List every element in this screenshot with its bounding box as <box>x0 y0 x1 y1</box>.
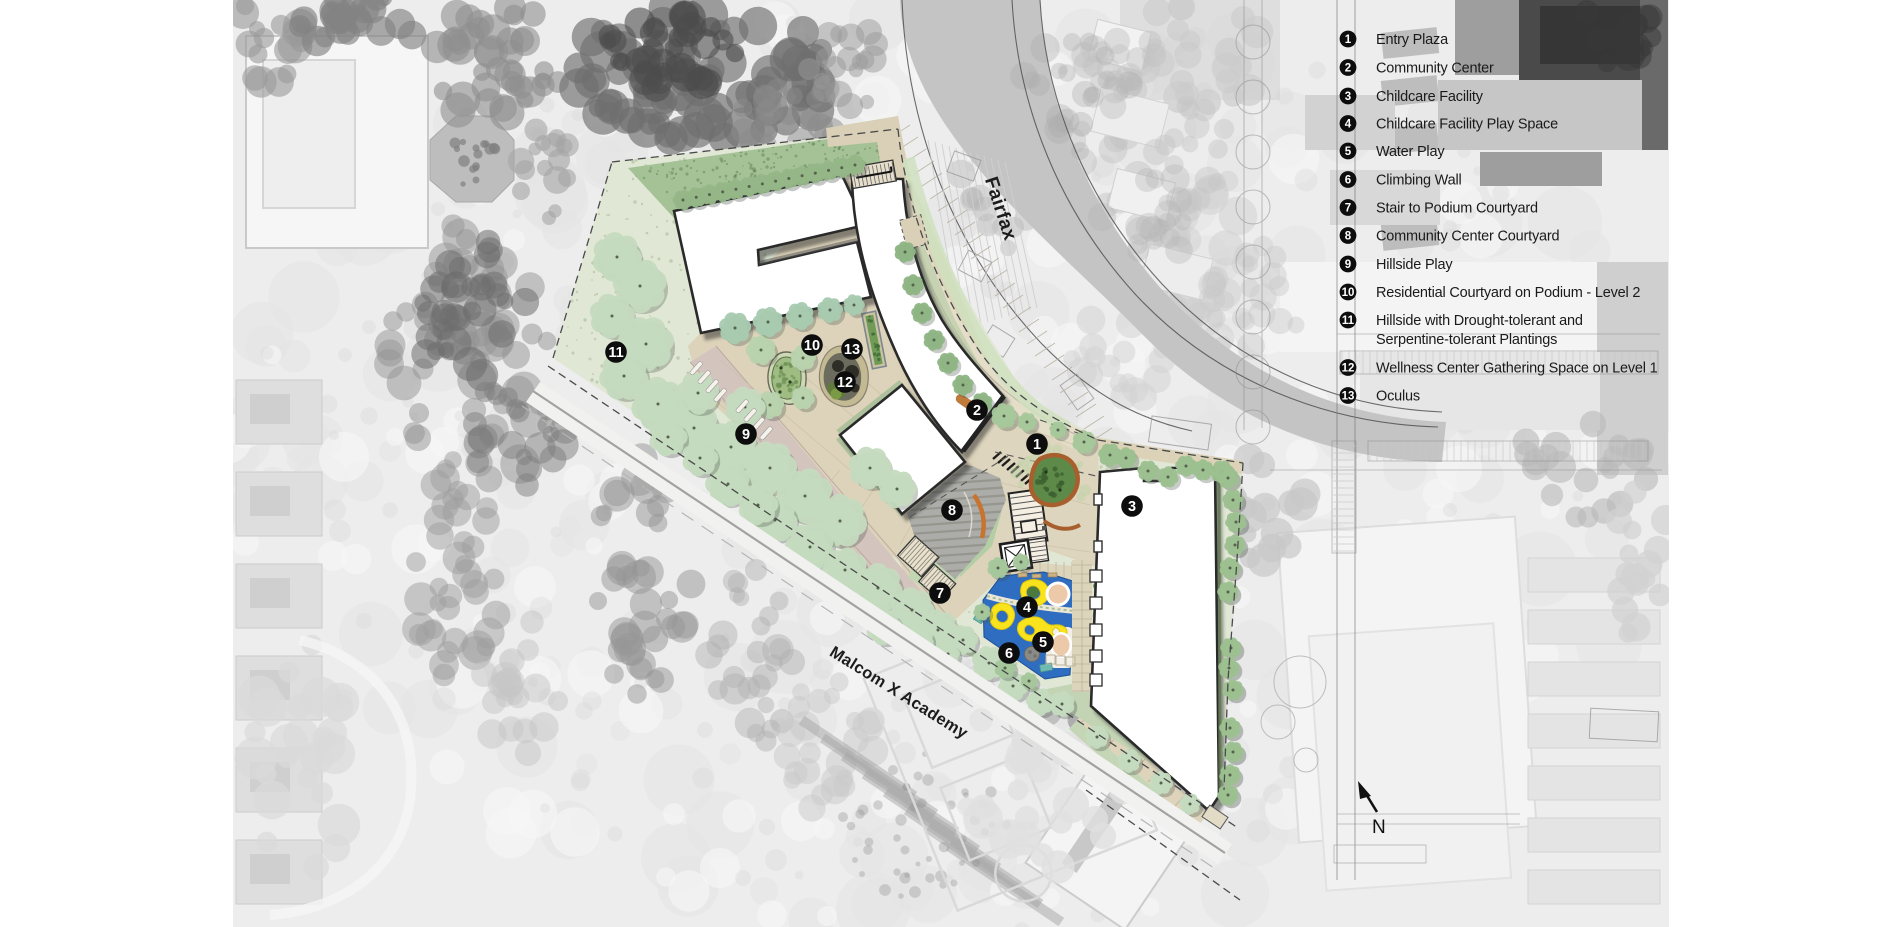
svg-text:6: 6 <box>1345 175 1351 187</box>
svg-text:Community Center: Community Center <box>1376 61 1494 77</box>
svg-text:13: 13 <box>1342 391 1355 403</box>
svg-text:10: 10 <box>804 338 820 354</box>
svg-text:13: 13 <box>844 342 860 358</box>
svg-text:Entry Plaza: Entry Plaza <box>1376 32 1449 48</box>
svg-text:1: 1 <box>1345 34 1352 46</box>
svg-text:Hillside with Drought-tolerant: Hillside with Drought-tolerant and <box>1376 313 1583 329</box>
svg-text:2: 2 <box>973 403 981 419</box>
svg-text:Oculus: Oculus <box>1376 389 1420 405</box>
svg-text:8: 8 <box>1345 231 1352 243</box>
svg-text:9: 9 <box>1345 259 1351 271</box>
svg-text:12: 12 <box>1342 363 1355 375</box>
svg-text:5: 5 <box>1039 635 1047 651</box>
svg-text:6: 6 <box>1005 646 1013 662</box>
svg-text:Childcare Facility Play Space: Childcare Facility Play Space <box>1376 117 1558 133</box>
svg-text:7: 7 <box>1345 203 1351 215</box>
svg-text:11: 11 <box>1342 315 1355 327</box>
svg-text:4: 4 <box>1023 600 1031 616</box>
svg-text:Hillside Play: Hillside Play <box>1376 257 1453 273</box>
svg-text:N: N <box>1372 817 1386 838</box>
svg-text:5: 5 <box>1345 146 1352 158</box>
svg-text:Climbing Wall: Climbing Wall <box>1376 173 1462 189</box>
svg-text:9: 9 <box>742 427 750 443</box>
svg-text:11: 11 <box>608 345 623 361</box>
svg-text:7: 7 <box>936 586 944 602</box>
svg-text:Wellness Center Gathering Spac: Wellness Center Gathering Space on Level… <box>1376 361 1658 377</box>
svg-text:Childcare Facility: Childcare Facility <box>1376 89 1484 105</box>
svg-text:Community Center Courtyard: Community Center Courtyard <box>1376 229 1559 245</box>
svg-text:1: 1 <box>1033 437 1041 453</box>
svg-text:2: 2 <box>1345 63 1351 75</box>
svg-text:8: 8 <box>948 503 956 519</box>
svg-text:3: 3 <box>1345 91 1351 103</box>
svg-text:3: 3 <box>1128 499 1136 515</box>
svg-text:4: 4 <box>1345 119 1352 131</box>
svg-text:Stair to Podium Courtyard: Stair to Podium Courtyard <box>1376 201 1538 217</box>
svg-text:12: 12 <box>837 375 853 391</box>
svg-text:Water Play: Water Play <box>1376 144 1445 160</box>
svg-text:10: 10 <box>1342 287 1355 299</box>
svg-text:Serpentine-tolerant Plantings: Serpentine-tolerant Plantings <box>1376 332 1557 348</box>
svg-text:Residential Courtyard on Podiu: Residential Courtyard on Podium - Level … <box>1376 285 1640 301</box>
